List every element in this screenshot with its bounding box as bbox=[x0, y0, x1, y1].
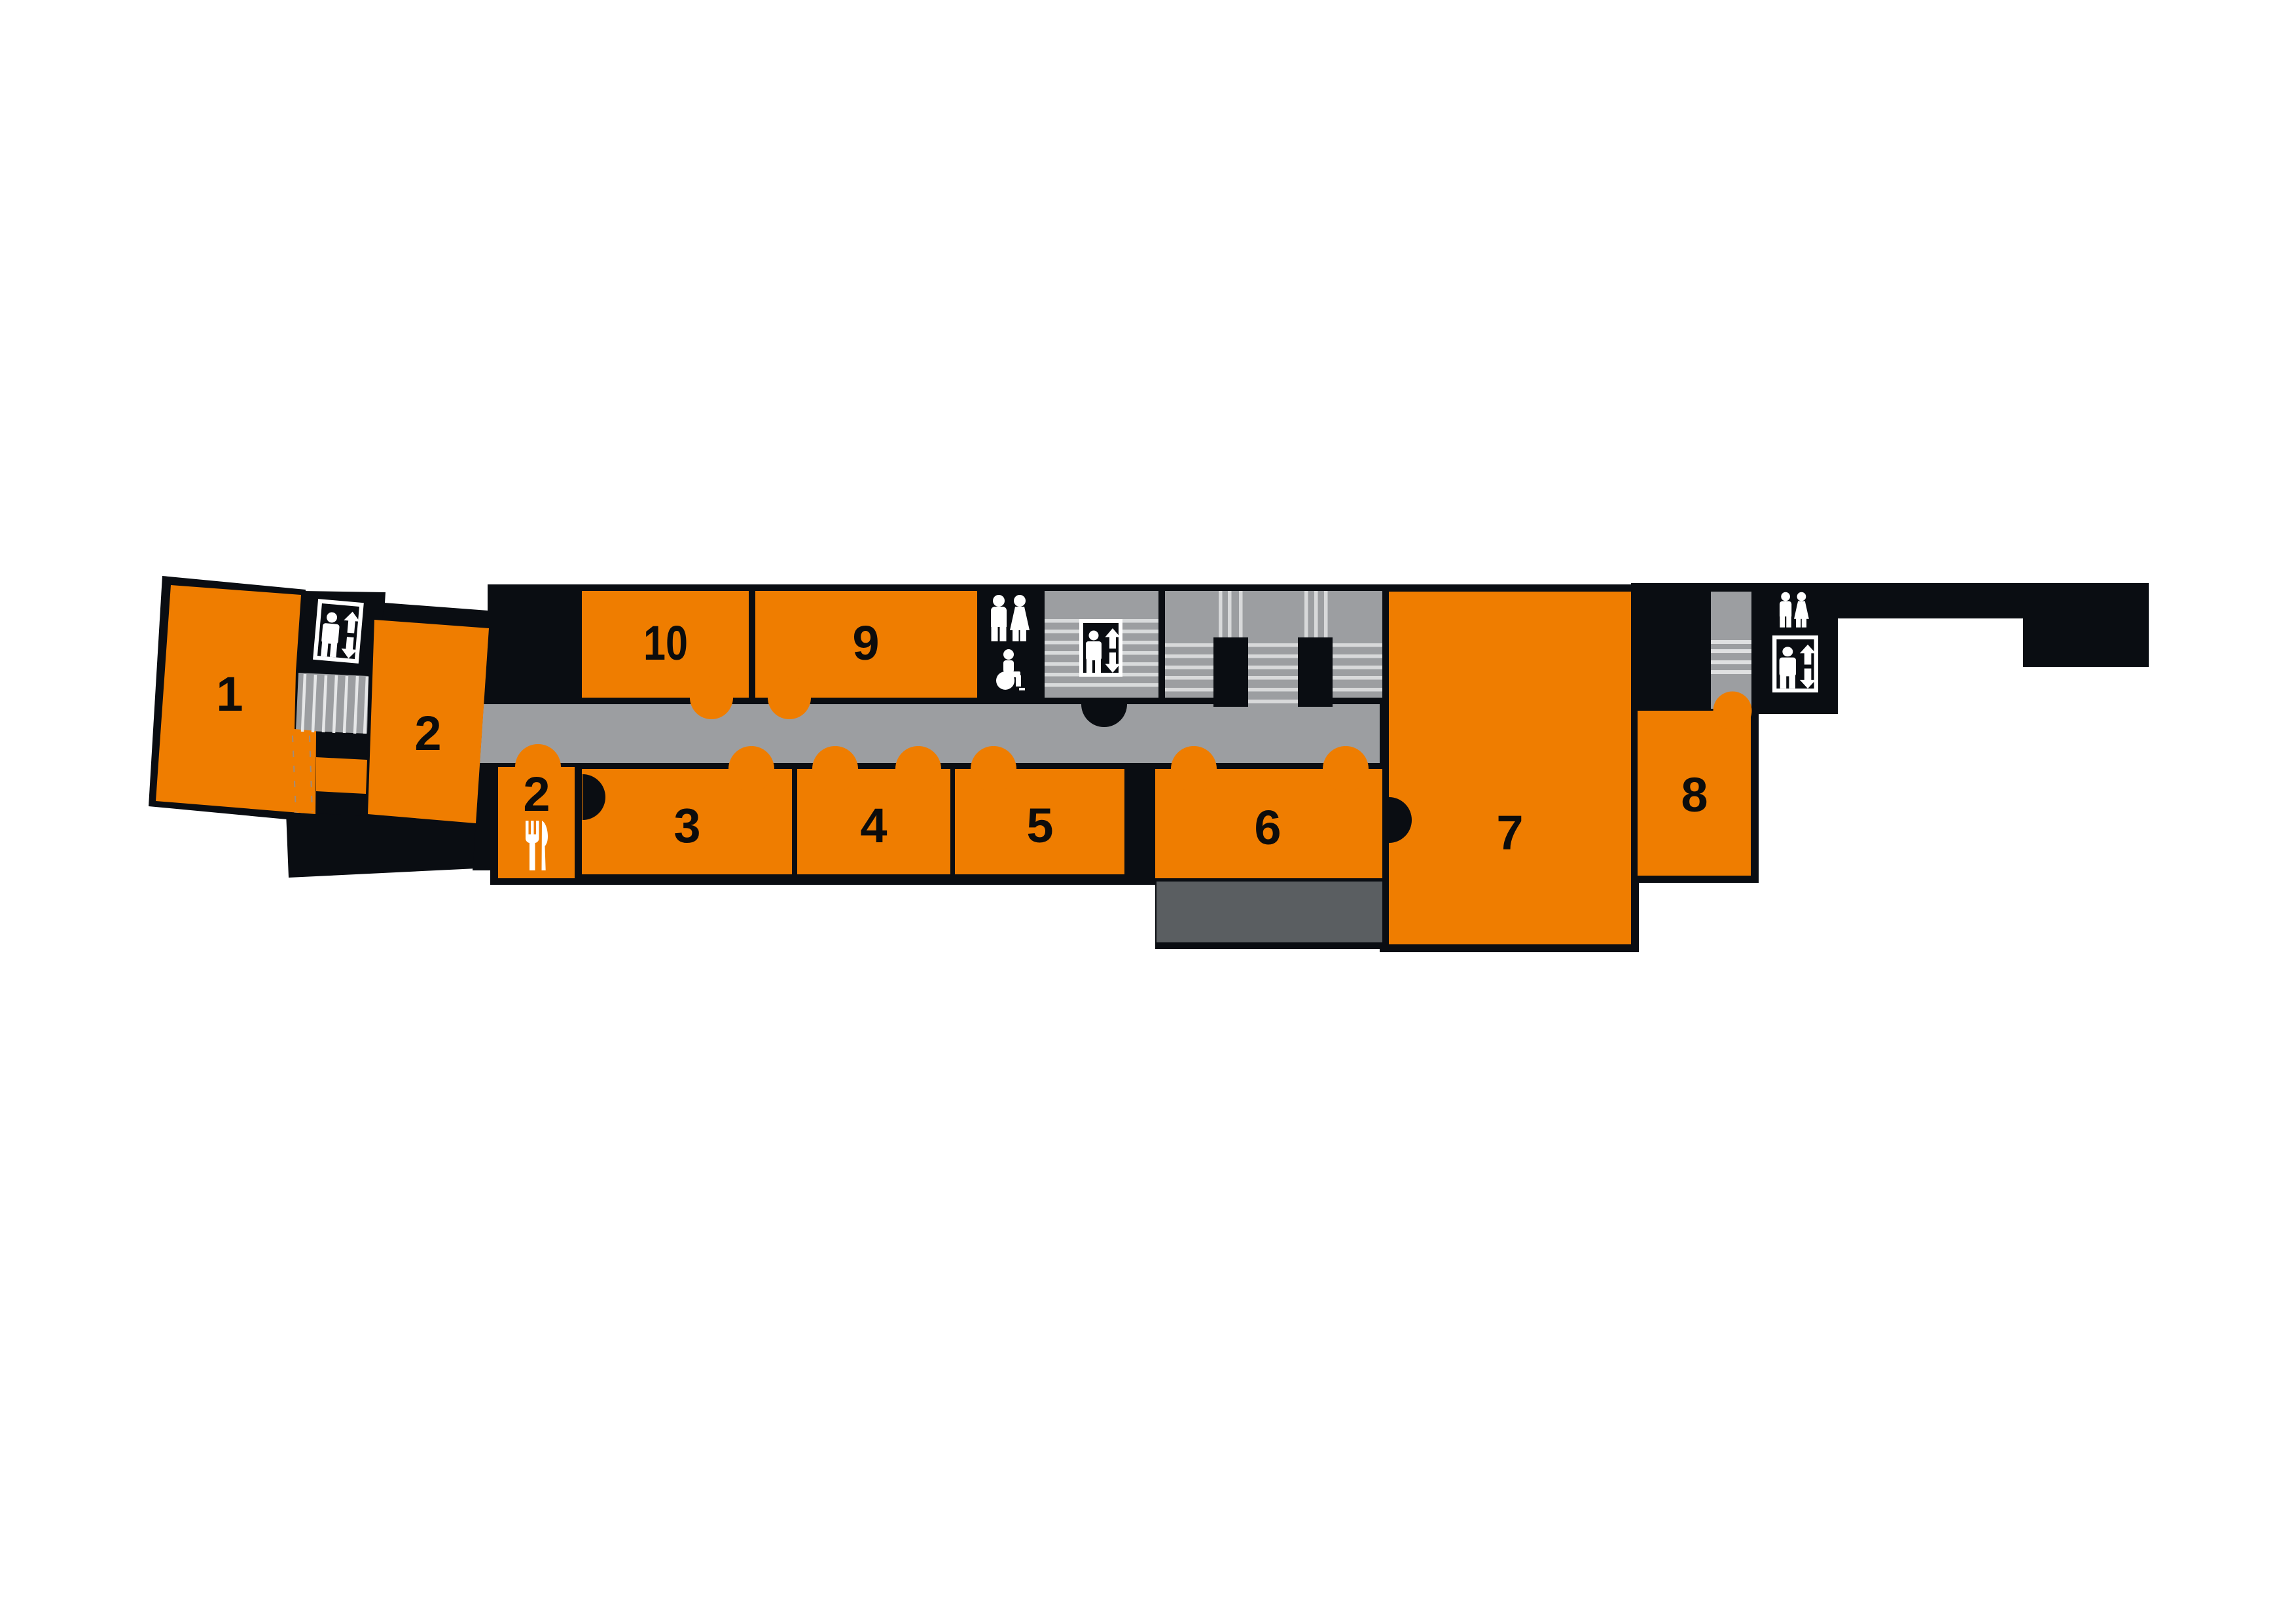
svg-text:1: 1 bbox=[216, 667, 243, 721]
svg-text:8: 8 bbox=[1681, 768, 1708, 822]
svg-text:10: 10 bbox=[643, 616, 688, 670]
svg-text:3: 3 bbox=[673, 798, 700, 853]
svg-text:7: 7 bbox=[1496, 806, 1523, 860]
svg-text:9: 9 bbox=[852, 616, 879, 670]
svg-text:6: 6 bbox=[1254, 800, 1281, 855]
svg-text:2: 2 bbox=[414, 706, 441, 760]
svg-text:4: 4 bbox=[860, 798, 887, 853]
svg-text:5: 5 bbox=[1026, 798, 1053, 853]
svg-text:2: 2 bbox=[523, 767, 550, 821]
